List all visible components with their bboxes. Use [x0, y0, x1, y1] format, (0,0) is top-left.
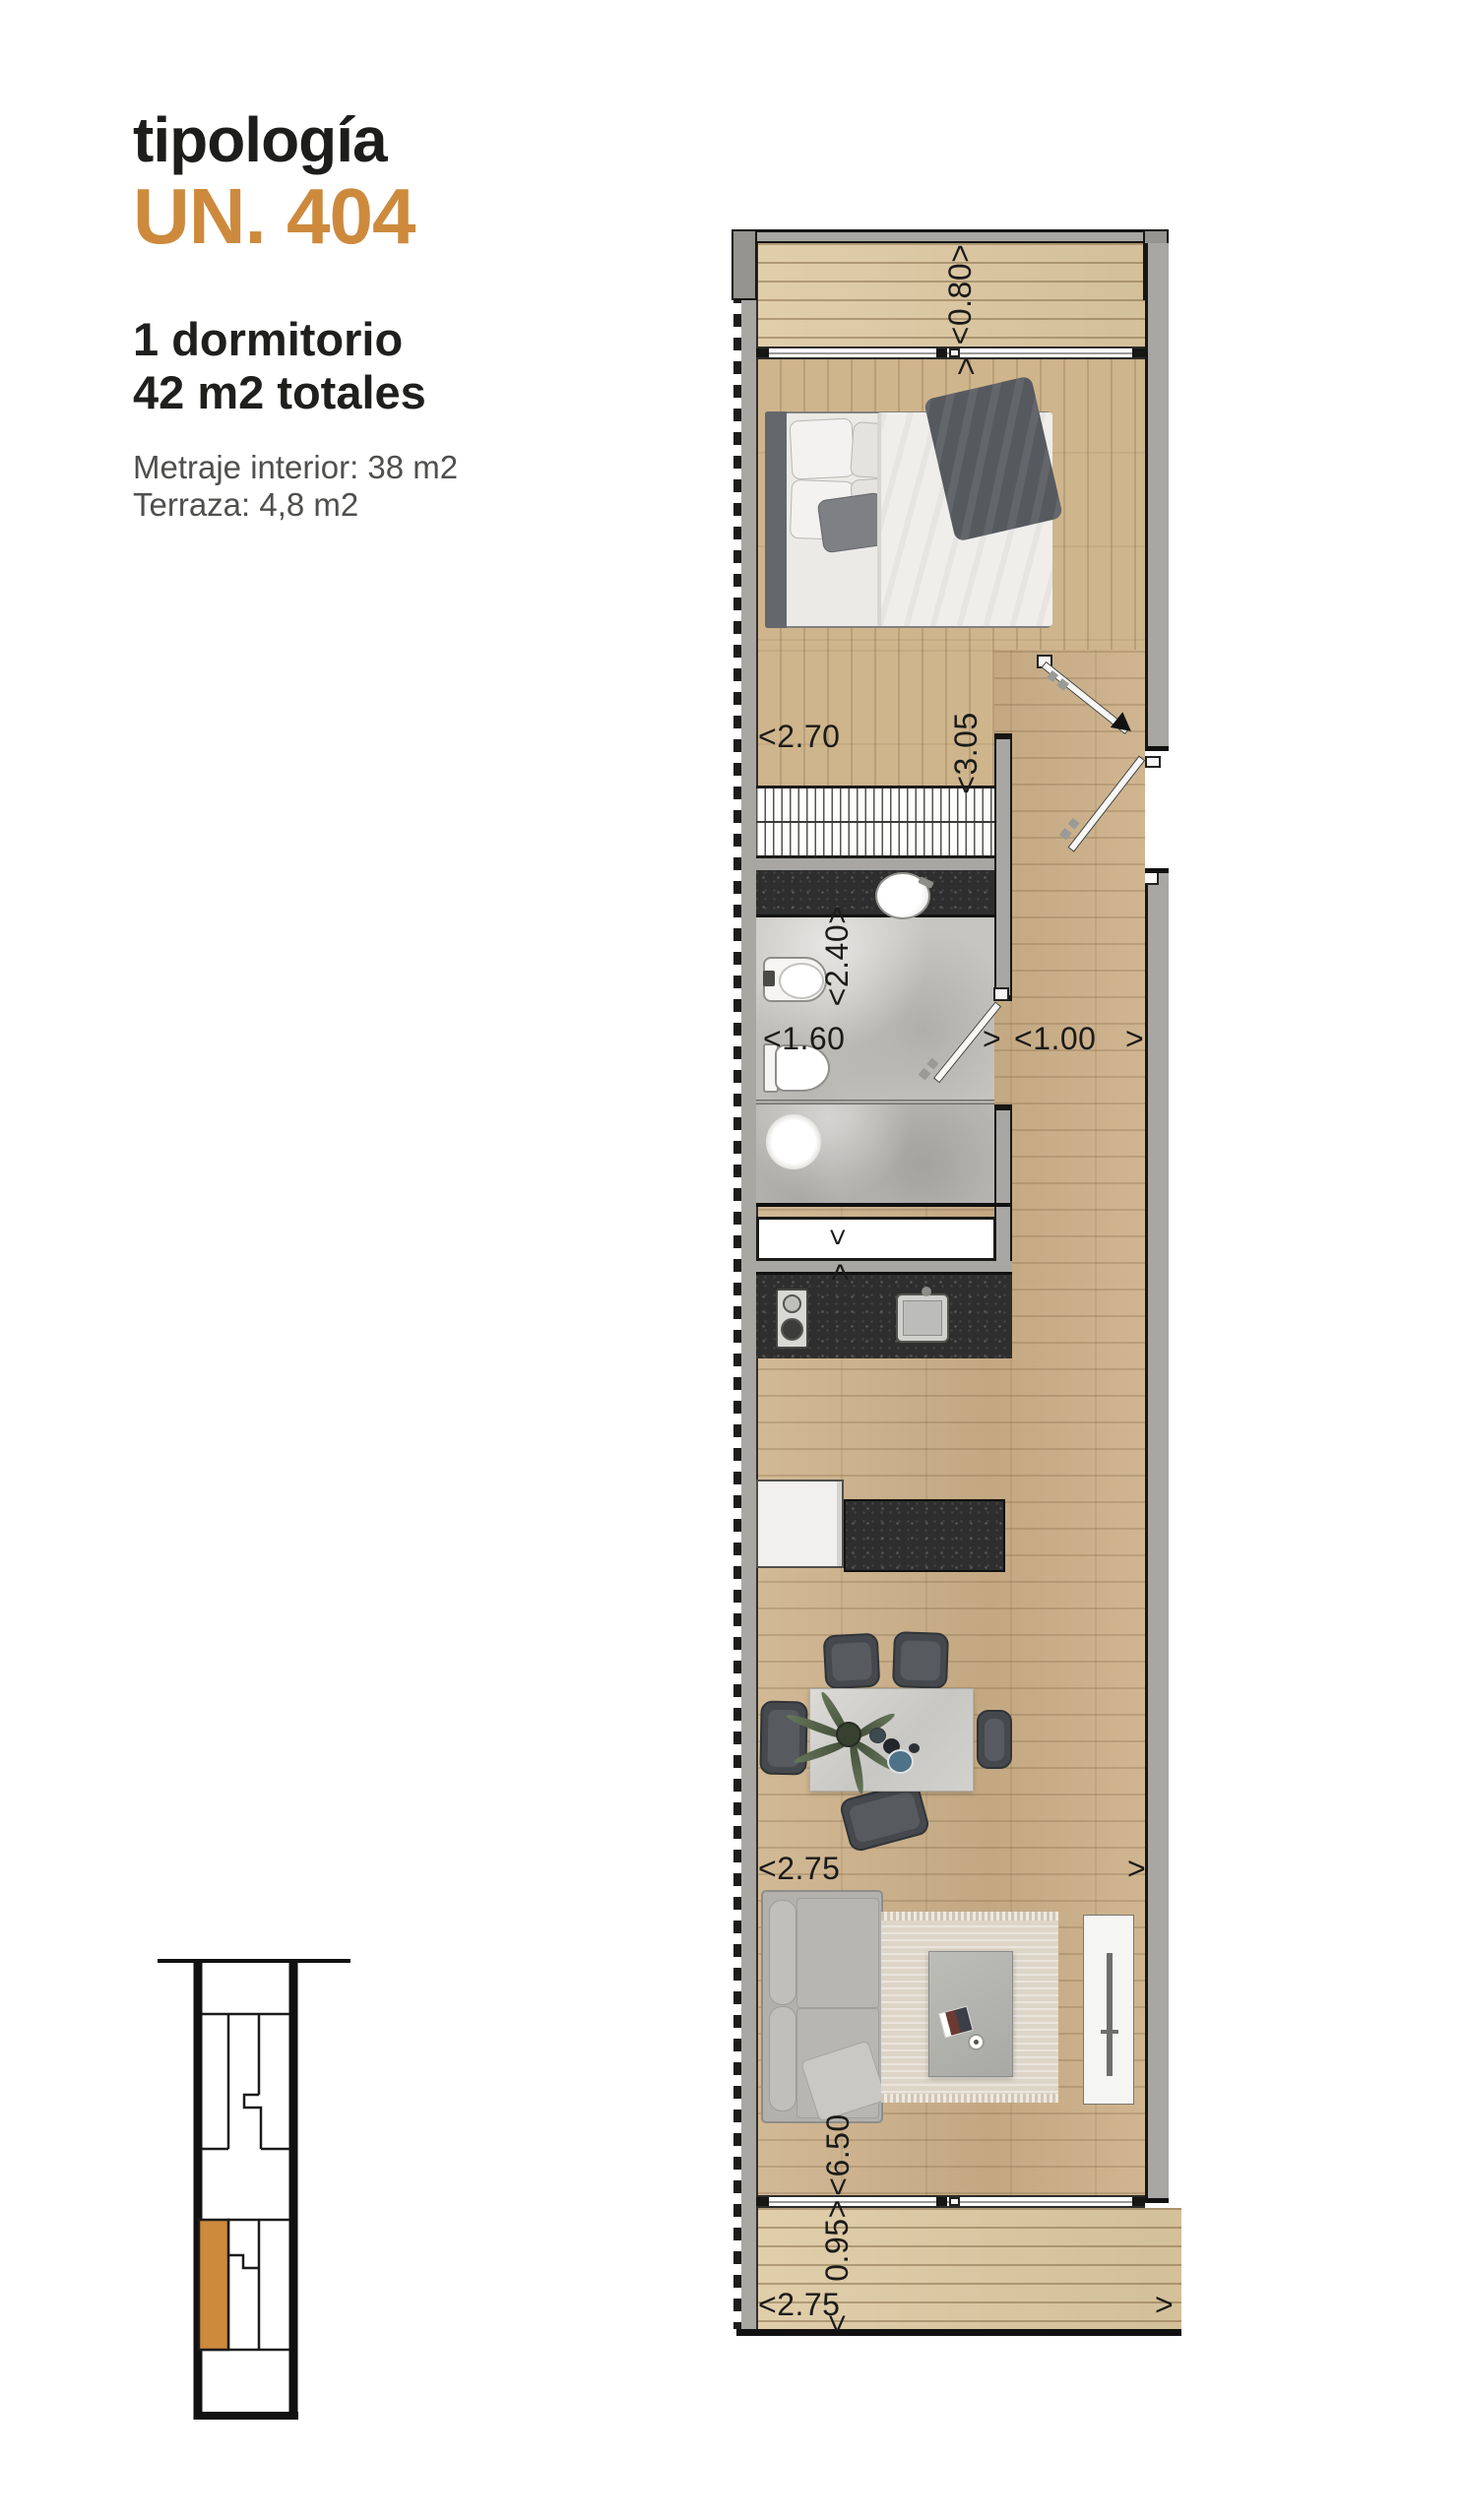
dim-bedroom-length: <3.05: [951, 694, 981, 812]
window-end-cap: [1132, 2197, 1145, 2206]
bidet-tap-icon: [763, 971, 775, 986]
right-wall-notch: [1145, 873, 1159, 885]
cup-center: [974, 2040, 979, 2045]
bed: [765, 411, 1050, 628]
cup: [968, 2034, 985, 2050]
key-plan: [156, 1957, 352, 2431]
table-bowl: [909, 1743, 920, 1753]
dim-terrace-bottom-width-right-arrow: >: [1155, 2287, 1174, 2323]
detail-line-2: Terraza: 4,8 m2: [133, 486, 684, 524]
tv-stand: [1101, 2030, 1118, 2034]
closet-swing-chevron-icon: >: [822, 1223, 852, 1252]
dim-bedroom-width: <2.70: [758, 719, 840, 755]
detail-line-1: Metraje interior: 38 m2: [133, 449, 684, 486]
top-left-wall-post: [732, 229, 757, 300]
bed-headboard: [765, 411, 787, 628]
rug-fringe: [881, 1912, 1058, 1921]
burner-icon: [783, 1294, 801, 1313]
window-end-cap: [756, 2197, 769, 2206]
burner-icon: [781, 1318, 803, 1341]
dining-chair: [759, 1701, 807, 1776]
key-plan-unit-highlight: [199, 2220, 228, 2350]
dim-bathroom-length: <2.40>: [822, 897, 852, 1015]
dining-chair: [823, 1633, 881, 1690]
wardrobe-wall-strip: [756, 858, 994, 870]
window-end-cap: [1132, 348, 1145, 357]
cabinet-wall-strip: [756, 1261, 1012, 1272]
dining-chair: [892, 1631, 949, 1689]
summary-line-2: 42 m2 totales: [133, 366, 684, 419]
partition-wall-lower: [994, 1104, 1012, 1272]
partition-end-cap: [993, 987, 1009, 1001]
page-kicker: tipología: [133, 108, 684, 171]
terrace-bottom-edge: [736, 2329, 1181, 2336]
unit-title: UN. 404: [133, 177, 684, 256]
closet-cabinet: [756, 1217, 996, 1261]
boundary-dashed-line: [733, 243, 741, 2329]
dim-living-width-right-arrow: >: [1127, 1851, 1146, 1887]
island-counter: [844, 1499, 1005, 1572]
bathroom-bottom-wall-line: [756, 1203, 1012, 1207]
right-wall-upper: [1145, 243, 1169, 751]
dining-chair: [977, 1710, 1012, 1769]
table-bowl-blue: [887, 1749, 914, 1774]
page: tipología UN. 404 1 dormitorio 42 m2 tot…: [0, 0, 1464, 2520]
bed-pillow: [789, 417, 855, 479]
shower-ceiling-light: [766, 1114, 821, 1169]
sofa: [761, 1890, 883, 2123]
dim-terrace-top-depth: <0.80>: [945, 235, 975, 353]
tv-console: [1083, 1915, 1134, 2105]
island-appliance: [756, 1480, 844, 1568]
sofa-back-cushion: [769, 1900, 796, 2005]
plant-pot: [836, 1722, 861, 1747]
magazine: [938, 2006, 974, 2039]
dim-bathroom-width-right-arrow: >: [983, 1021, 1001, 1057]
kitchen-sink-basin: [903, 1300, 942, 1336]
sofa-seat-cushion: [796, 1898, 879, 2008]
tv: [1107, 1953, 1113, 2076]
dim-terrace-bottom-depth-bottom-arrow: <: [822, 2308, 852, 2338]
summary-line-1: 1 dormitorio: [133, 313, 684, 366]
sofa-back-cushion: [769, 2006, 796, 2111]
wardrobe-rail: [756, 821, 994, 823]
living-terrace-window: [756, 2195, 1145, 2208]
dim-living-width: <2.75: [758, 1851, 840, 1887]
dim-hall-width-right-arrow: >: [1125, 1021, 1144, 1057]
cooktop: [776, 1289, 808, 1349]
title-block: tipología UN. 404 1 dormitorio 42 m2 tot…: [133, 108, 684, 524]
window-mullion: [936, 2197, 947, 2206]
kitchen-sink: [896, 1293, 949, 1343]
dim-bathroom-width: <1.60: [763, 1021, 845, 1057]
rug-fringe: [881, 2094, 1058, 2103]
kitchen-faucet-icon: [922, 1287, 931, 1296]
dim-terrace-bottom-depth: 0.95>: [822, 2181, 852, 2299]
dim-hall-width: <1.00: [1014, 1021, 1096, 1057]
dim-living-length-top-arrow: >: [825, 1257, 855, 1287]
entry-threshold: [1145, 756, 1161, 768]
coffee-table: [928, 1951, 1013, 2077]
vessel-sink: [875, 872, 930, 919]
bidet: [763, 957, 827, 1002]
floor-plan: >: [732, 227, 1184, 2336]
bidet-bowl: [779, 963, 824, 999]
kitchen-counter: [756, 1272, 1012, 1358]
dim-bedroom-length-top-arrow: >: [951, 351, 981, 381]
right-wall-lower: [1145, 868, 1169, 2203]
partition-wall-upper: [994, 733, 1012, 1001]
window-mullion-box: [949, 2197, 960, 2206]
window-end-cap: [756, 348, 769, 357]
